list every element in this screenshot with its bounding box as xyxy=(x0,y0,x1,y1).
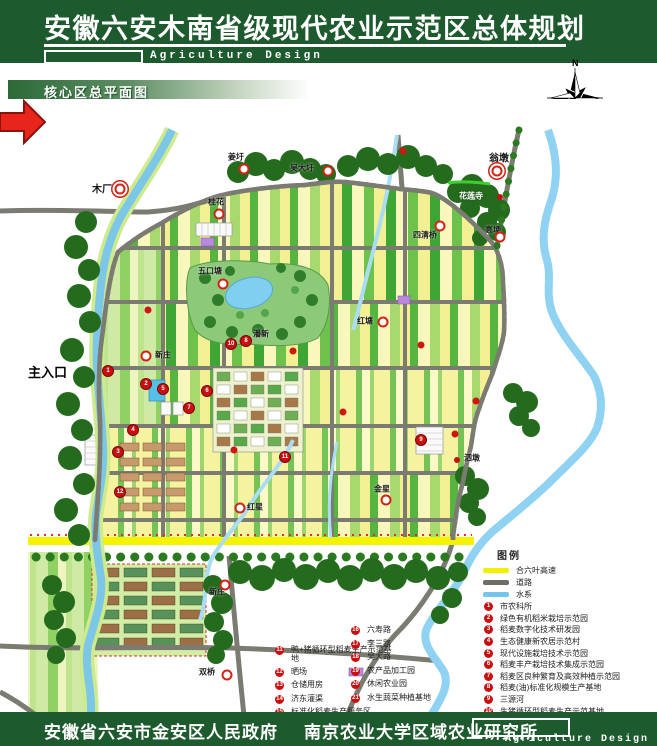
legend-item-label: 稻麦区良种繁育及高效种植示范园 xyxy=(500,671,620,682)
legend-number-icon: 11 xyxy=(275,646,284,655)
map-site-dot-icon xyxy=(231,447,238,454)
map-place-label: 姜圩 xyxy=(228,152,244,163)
legend-number-icon: 17 xyxy=(351,640,360,649)
header-outline-box xyxy=(44,50,143,64)
title-underline xyxy=(44,44,566,47)
legend-item-label: 稻麦(油)标准化规模生产基地 xyxy=(500,682,601,693)
legend-item-label: 济东灌渠 xyxy=(291,694,323,703)
map-place-marker-icon xyxy=(492,166,503,177)
map-numbered-marker: 5 xyxy=(157,383,169,395)
legend-number-icon: 7 xyxy=(484,672,493,681)
header-subtitle: Agriculture Design xyxy=(150,50,323,62)
map-site-dot-icon xyxy=(145,307,152,314)
north-label: N xyxy=(572,58,579,68)
legend-item: 1市农科所 xyxy=(483,601,655,613)
legend-item: 8稻麦(油)标准化规模生产基地 xyxy=(483,682,655,694)
legend-number-icon: 8 xyxy=(484,683,493,692)
map-numbered-marker: 6 xyxy=(201,385,213,397)
footer-subtitle: Agriculture Design xyxy=(505,734,649,745)
residential-cluster-b xyxy=(92,564,206,656)
legend-line-item: 水系 xyxy=(483,589,655,600)
legend-column-right: 16六寿路17李三路18吴大路19农产品加工园20休闲农业园21水生蔬菜种植基地 xyxy=(350,625,480,706)
legend-item: 21水生蔬菜种植基地 xyxy=(350,693,480,703)
map-site-dot-icon xyxy=(290,348,297,355)
legend-line-label: 水系 xyxy=(516,589,532,600)
legend-item-label: 稻麦数字化技术研发园 xyxy=(500,624,580,635)
legend-item-label: 晒场 xyxy=(291,667,307,676)
map-place-marker-icon xyxy=(239,164,250,175)
map-place-label: 翁墩 xyxy=(489,150,509,165)
legend-number-icon: 19 xyxy=(351,667,360,676)
legend-item: 17李三路 xyxy=(350,639,480,649)
map-site-dot-icon xyxy=(473,398,480,405)
legend-item: 9三源河 xyxy=(483,694,655,706)
legend-swatch-icon xyxy=(483,568,509,573)
legend-item: 3稻麦数字化技术研发园 xyxy=(483,624,655,636)
map-place-marker-icon xyxy=(435,221,446,232)
map-place-label: 吴大圩 xyxy=(290,163,314,174)
map-place-label: 潘新 xyxy=(253,329,269,340)
legend-number-icon: 4 xyxy=(484,637,493,646)
map-place-marker-icon xyxy=(222,670,233,681)
legend-number-icon: 1 xyxy=(484,602,493,611)
legend-title: 图例 xyxy=(497,547,655,562)
master-plan-map: 主入口 图例 合六叶高速道路水系 1市农科所2绿色有机稻米栽培示范园3稻麦数字化… xyxy=(0,99,657,712)
map-numbered-marker: 2 xyxy=(140,378,152,390)
legend-item-label: 市农科所 xyxy=(500,601,532,612)
legend-item-label: 稻麦丰产栽培技术集成示范园 xyxy=(500,659,604,670)
map-place-marker-icon xyxy=(497,194,503,200)
map-place-label: 双桥 xyxy=(199,667,215,678)
map-numbered-marker: 3 xyxy=(112,446,124,458)
map-site-dot-icon xyxy=(452,431,459,438)
map-numbered-marker: 11 xyxy=(279,451,291,463)
map-place-marker-icon xyxy=(378,317,389,328)
legend-item: 4生态健康新农居示范村 xyxy=(483,636,655,648)
legend-item: 7稻麦区良种繁育及高效种植示范园 xyxy=(483,671,655,683)
header: 安徽六安木南省级现代农业示范区总体规划 Agriculture Design xyxy=(0,0,657,63)
legend-number-icon: 18 xyxy=(351,653,360,662)
map-place-marker-icon xyxy=(115,184,126,195)
section-bar: 核心区总平面图 xyxy=(8,79,310,101)
legend-item-label: 六寿路 xyxy=(367,625,391,634)
legend-item-label: 现代设施栽培技术示范园 xyxy=(500,648,588,659)
legend-line-label: 合六叶高速 xyxy=(516,565,556,576)
legend-number-icon: 13 xyxy=(275,681,284,690)
legend-number-icon: 16 xyxy=(351,626,360,635)
page-title: 安徽六安木南省级现代农业示范区总体规划 xyxy=(44,7,586,46)
map-place-label: 红塘 xyxy=(357,316,373,327)
legend-number-icon: 5 xyxy=(484,649,493,658)
map-site-dot-icon xyxy=(400,148,407,155)
map-numbered-marker: 4 xyxy=(127,424,139,436)
legend-number-icon: 9 xyxy=(484,695,493,704)
map-place-label: 桂花 xyxy=(208,197,224,208)
legend-item: 5现代设施栽培技术示范园 xyxy=(483,647,655,659)
legend-item: 19农产品加工园 xyxy=(350,666,480,676)
legend-item-label: 农产品加工园 xyxy=(367,666,415,675)
map-site-dot-icon xyxy=(340,409,347,416)
main-entrance-arrow-icon xyxy=(0,99,46,145)
legend-item: 6稻麦丰产栽培技术集成示范园 xyxy=(483,659,655,671)
legend-line-label: 道路 xyxy=(516,577,532,588)
legend-item-label: 绿色有机稻米栽培示范园 xyxy=(500,613,588,624)
legend-line-item: 道路 xyxy=(483,577,655,588)
map-place-label: 金星 xyxy=(374,484,390,495)
map-place-label: 五口塘 xyxy=(198,266,222,277)
map-site-dot-icon xyxy=(418,342,425,349)
map-place-marker-icon xyxy=(220,580,231,591)
legend-item-label: 仓储用房 xyxy=(291,680,323,689)
legend-item-label: 生态健康新农居示范村 xyxy=(500,636,580,647)
legend-item-label: 李三路 xyxy=(367,639,391,648)
map-numbered-marker: 8 xyxy=(240,335,252,347)
legend-number-icon: 12 xyxy=(275,668,284,677)
legend-number-icon: 3 xyxy=(484,625,493,634)
main-entrance-label: 主入口 xyxy=(28,362,67,381)
legend-item: 20休闲农业园 xyxy=(350,679,480,689)
processing-park xyxy=(213,368,303,452)
planning-poster: 安徽六安木南省级现代农业示范区总体规划 Agriculture Design 核… xyxy=(0,0,657,746)
map-numbered-marker: 10 xyxy=(225,338,237,350)
map-place-label: 花莲寺 xyxy=(459,191,483,202)
legend-swatch-icon xyxy=(483,580,509,585)
map-place-marker-icon xyxy=(323,166,334,177)
map-place-label: 木厂 xyxy=(92,181,112,196)
legend-line-item: 合六叶高速 xyxy=(483,565,655,576)
legend-number-icon: 20 xyxy=(351,680,360,689)
map-place-marker-icon xyxy=(454,457,460,463)
map-place-label: 新庄 xyxy=(155,350,171,361)
legend-item: 16六寿路 xyxy=(350,625,480,635)
map-numbered-marker: 9 xyxy=(415,434,427,446)
footer: 安徽省六安市金安区人民政府南京农业大学区域农业研究所 Agriculture D… xyxy=(0,712,657,746)
legend-item-label: 休闲农业园 xyxy=(367,679,407,688)
legend-item: 2绿色有机稻米栽培示范园 xyxy=(483,613,655,625)
legend-item-label: 吴大路 xyxy=(367,652,391,661)
map-place-marker-icon xyxy=(495,232,506,243)
legend-swatch-icon xyxy=(483,592,509,597)
legend-number-icon: 14 xyxy=(275,695,284,704)
map-numbered-marker: 7 xyxy=(183,402,195,414)
map-numbered-marker: 1 xyxy=(102,365,114,377)
footer-organizations: 安徽省六安市金安区人民政府南京农业大学区域农业研究所 xyxy=(44,718,538,743)
legend-number-icon: 2 xyxy=(484,614,493,623)
map-place-marker-icon xyxy=(235,503,246,514)
map-place-label: 红星 xyxy=(247,502,263,513)
legend-item: 18吴大路 xyxy=(350,652,480,662)
legend-item-label: 水生蔬菜种植基地 xyxy=(367,693,431,702)
map-place-marker-icon xyxy=(218,279,229,290)
legend: 图例 合六叶高速道路水系 1市农科所2绿色有机稻米栽培示范园3稻麦数字化技术研发… xyxy=(483,547,655,717)
map-place-marker-icon xyxy=(141,351,152,362)
map-place-marker-icon xyxy=(381,495,392,506)
footer-org-government: 安徽省六安市金安区人民政府 xyxy=(44,723,278,742)
map-place-label: 泗墩 xyxy=(464,453,480,464)
map-place-label: 四清桥 xyxy=(413,230,437,241)
legend-number-icon: 21 xyxy=(351,694,360,703)
legend-number-icon: 6 xyxy=(484,660,493,669)
map-place-marker-icon xyxy=(214,209,225,220)
legend-item-label: 三源河 xyxy=(500,694,524,705)
map-numbered-marker: 12 xyxy=(114,486,126,498)
